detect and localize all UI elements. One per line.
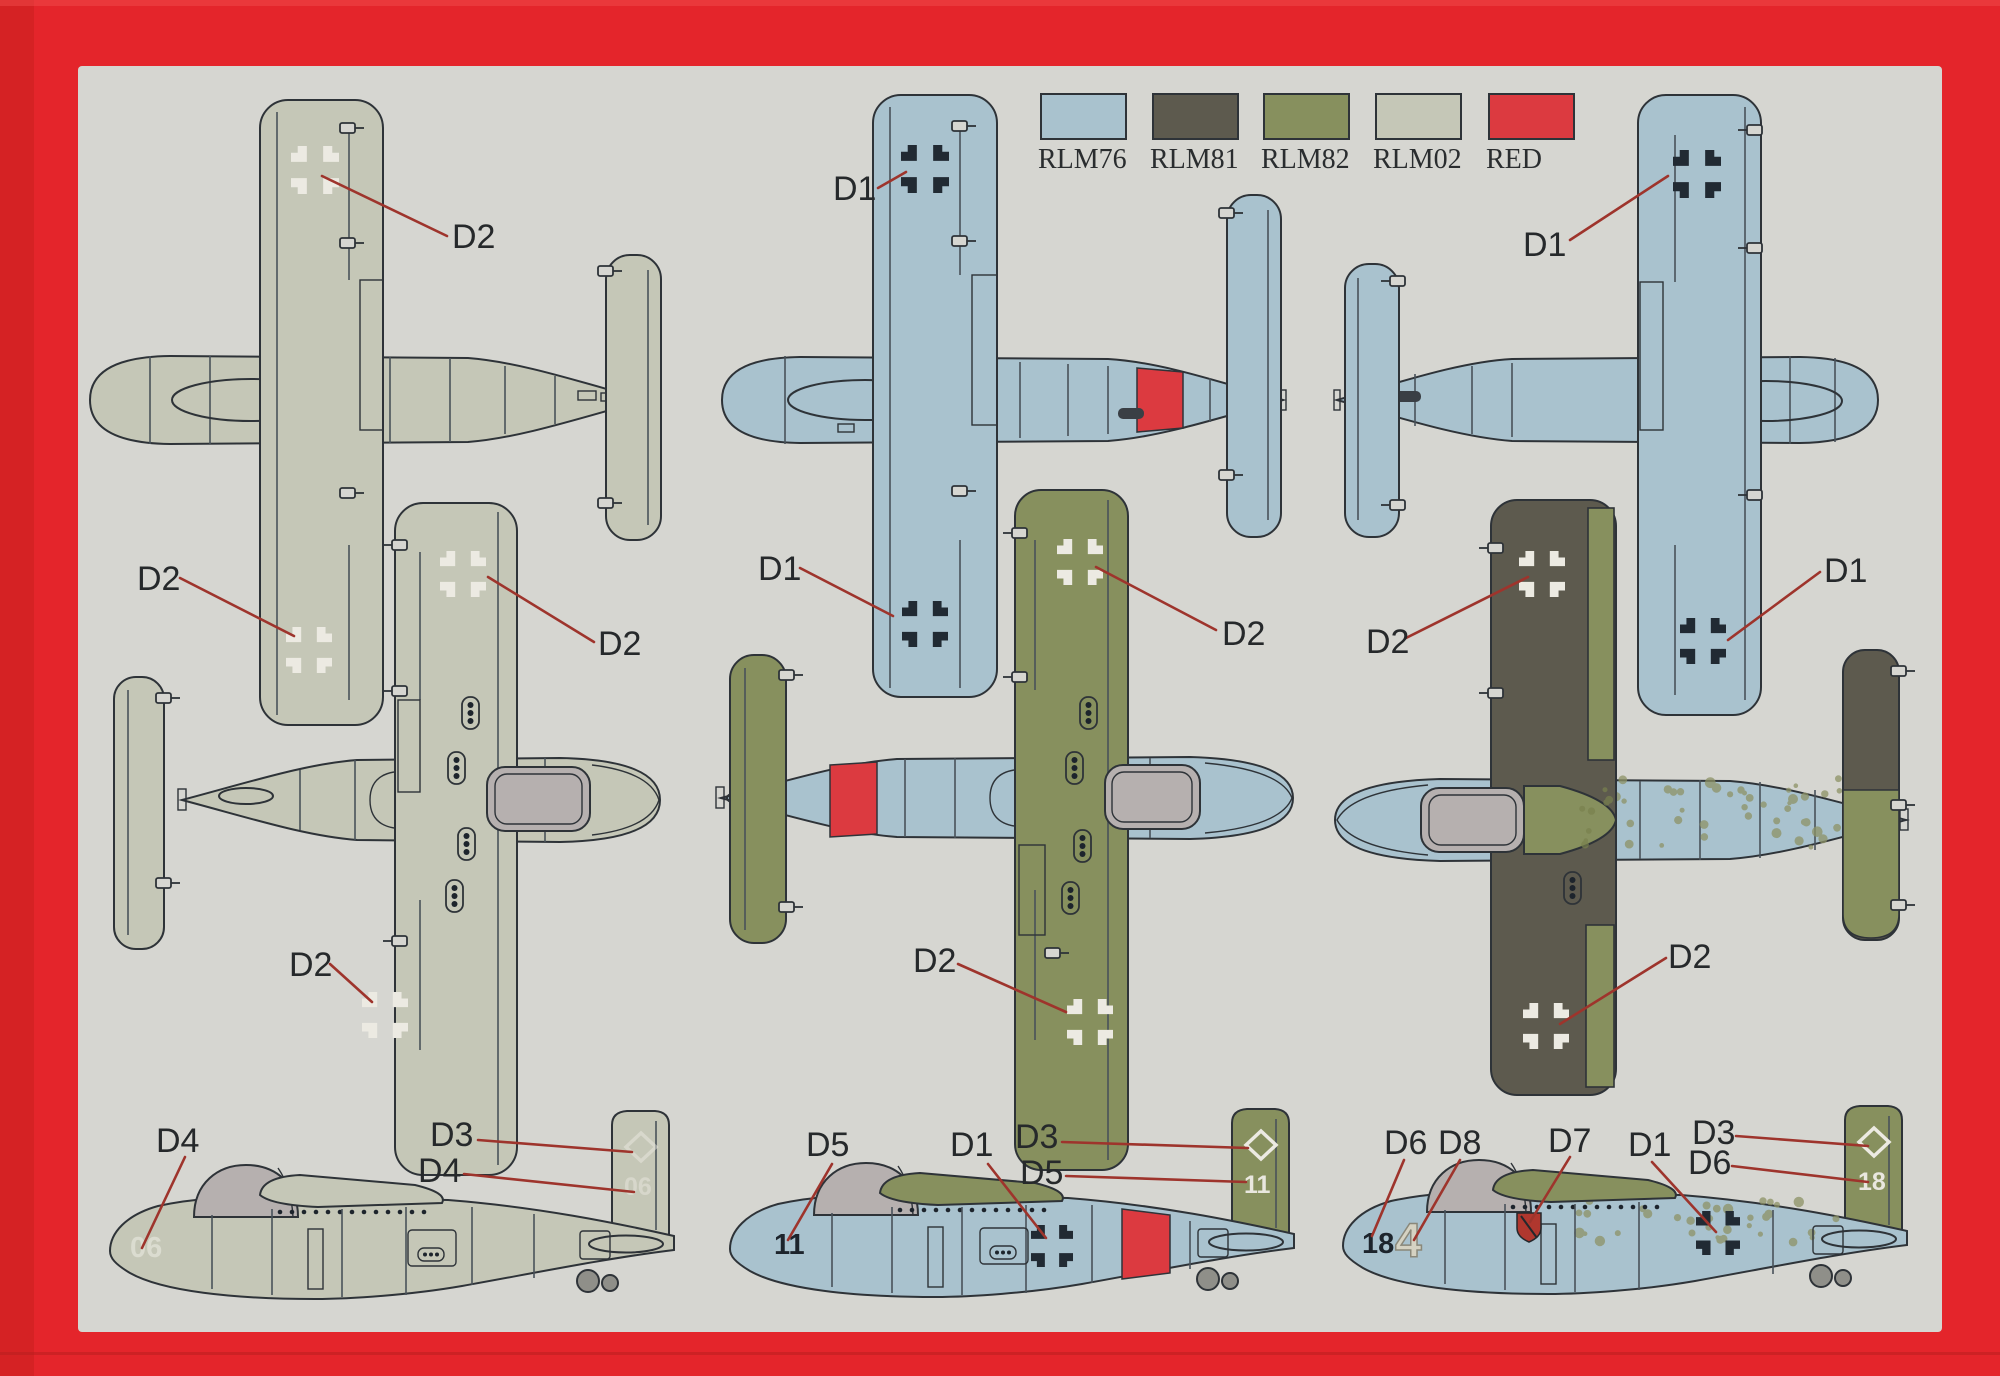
tailplane: [1227, 195, 1281, 537]
callout-label: D2: [1668, 938, 1711, 976]
tailplane-lower-half: [1843, 790, 1899, 938]
callout-label: D5: [806, 1126, 849, 1164]
tailplane: [730, 655, 786, 943]
canopy: [1421, 788, 1524, 852]
paint-guide-scene: RLM76 RLM81 RLM82 RLM02 RED: [0, 0, 2000, 1376]
callout-label: D1: [758, 550, 801, 588]
red-fuselage-band: [1122, 1209, 1170, 1279]
wheel: [577, 1270, 599, 1292]
box-frame-left-shade: [0, 0, 34, 1376]
callout-label: D2: [913, 942, 956, 980]
tailplane: [114, 677, 164, 949]
box-frame-highlight: [0, 0, 2000, 6]
callout-label: D8: [1438, 1124, 1481, 1162]
callout-label: D3: [430, 1116, 473, 1154]
legend-swatch-red: [1489, 94, 1574, 139]
red-fuselage-band: [1137, 368, 1183, 432]
tactical-number-marking: 4: [1395, 1215, 1422, 1268]
callout-label: D1: [833, 170, 876, 208]
legend-swatch-rlm76: [1041, 94, 1126, 139]
boxart-paint-guide: RLM76 RLM81 RLM82 RLM02 RED: [0, 0, 2000, 1376]
wheel: [1197, 1268, 1219, 1290]
callout-label: D5: [1020, 1154, 1063, 1192]
canopy: [1105, 765, 1200, 829]
legend-label-rlm81: RLM81: [1150, 144, 1239, 175]
wheel: [602, 1275, 618, 1291]
wing-aileron-strip: [1588, 508, 1614, 760]
legend-swatch-rlm82: [1264, 94, 1349, 139]
wheel: [1835, 1270, 1851, 1286]
wing: [1015, 490, 1128, 1170]
callout-label: D1: [1523, 226, 1566, 264]
wheel: [1222, 1273, 1238, 1289]
box-frame-crease: [0, 1352, 2000, 1355]
wheel: [1810, 1265, 1832, 1287]
legend-label-red: RED: [1486, 144, 1542, 175]
fin-code-marking: 06: [624, 1173, 652, 1201]
nose-code-marking: 11: [774, 1229, 805, 1261]
red-fuselage-band: [830, 762, 877, 837]
callout-label: D3: [1015, 1118, 1058, 1156]
callout-label: D2: [452, 218, 495, 256]
callout-label: D6: [1384, 1124, 1427, 1162]
callout-label: D7: [1548, 1122, 1591, 1160]
paint-legend: RLM76 RLM81 RLM82 RLM02 RED: [1038, 94, 1574, 175]
callout-label: D2: [289, 946, 332, 984]
callout-label: D2: [1366, 623, 1409, 661]
nose-code-marking: 18: [1362, 1228, 1394, 1260]
callout-label: D1: [950, 1126, 993, 1164]
tailplane: [606, 255, 661, 540]
callout-label: D2: [598, 625, 641, 663]
callout-label: D1: [1824, 552, 1867, 590]
callout-label: D2: [1222, 615, 1265, 653]
legend-label-rlm76: RLM76: [1038, 144, 1127, 175]
callout-label: D4: [156, 1122, 199, 1160]
callout-label: D1: [1628, 1126, 1671, 1164]
legend-swatch-rlm02: [1376, 94, 1461, 139]
callout-label: D6: [1688, 1144, 1731, 1182]
fin-code-marking: 11: [1244, 1171, 1271, 1199]
callout-label: D2: [137, 560, 180, 598]
canopy: [487, 767, 590, 831]
tailplane: [1345, 264, 1399, 537]
legend-label-rlm02: RLM02: [1373, 144, 1462, 175]
legend-label-rlm82: RLM82: [1261, 144, 1350, 175]
legend-swatch-rlm81: [1153, 94, 1238, 139]
callout-label: D4: [418, 1152, 461, 1190]
wing: [1638, 95, 1761, 715]
